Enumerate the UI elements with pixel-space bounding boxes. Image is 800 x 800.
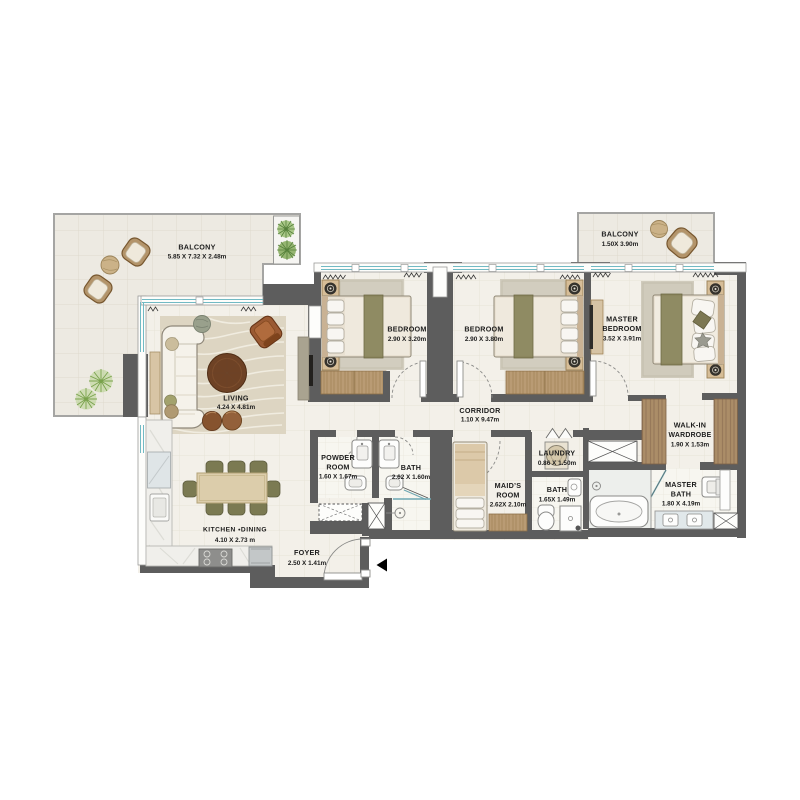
svg-text:BEDROOM: BEDROOM xyxy=(602,324,641,333)
svg-text:ROOM: ROOM xyxy=(496,491,519,500)
svg-text:CORRIDOR: CORRIDOR xyxy=(459,406,501,415)
svg-text:BALCONY: BALCONY xyxy=(601,230,638,239)
svg-text:3.52 X 3.91m: 3.52 X 3.91m xyxy=(603,336,642,343)
svg-text:KITCHEN •DINING: KITCHEN •DINING xyxy=(203,527,267,534)
svg-text:POWDER: POWDER xyxy=(321,453,355,462)
svg-text:1.10 X 9.47m: 1.10 X 9.47m xyxy=(461,417,500,424)
svg-text:5.85 X 7.32 X 2.48m: 5.85 X 7.32 X 2.48m xyxy=(168,254,227,261)
svg-text:FOYER: FOYER xyxy=(294,548,321,557)
svg-text:1.50X 3.90m: 1.50X 3.90m xyxy=(602,241,639,248)
svg-text:4.24 X 4.81m: 4.24 X 4.81m xyxy=(217,404,256,411)
svg-text:2.62X 2.10m: 2.62X 2.10m xyxy=(490,502,527,509)
svg-text:1.80 X 4.19m: 1.80 X 4.19m xyxy=(662,501,701,508)
svg-text:0.86 X 1.50m: 0.86 X 1.50m xyxy=(538,460,577,467)
svg-text:BATH: BATH xyxy=(401,463,421,472)
svg-text:ROOM: ROOM xyxy=(326,463,349,472)
svg-text:1.60 X 1.67m: 1.60 X 1.67m xyxy=(319,474,358,481)
svg-text:BEDROOM: BEDROOM xyxy=(387,325,426,334)
svg-text:WARDROBE: WARDROBE xyxy=(669,432,712,439)
svg-text:MASTER: MASTER xyxy=(665,480,697,489)
svg-text:MAID’S: MAID’S xyxy=(495,481,522,490)
svg-text:BALCONY: BALCONY xyxy=(178,243,215,252)
svg-text:2.90 X 3.20m: 2.90 X 3.20m xyxy=(388,336,427,343)
svg-text:BEDROOM: BEDROOM xyxy=(464,325,503,334)
svg-text:BATH: BATH xyxy=(671,490,691,499)
svg-text:2.90 X 3.80m: 2.90 X 3.80m xyxy=(465,336,504,343)
svg-text:LAUNDRY: LAUNDRY xyxy=(539,449,576,458)
svg-text:WALK-IN: WALK-IN xyxy=(674,421,707,430)
svg-text:2.50 X 1.41m: 2.50 X 1.41m xyxy=(288,560,327,567)
svg-text:2.62 X 1.60m: 2.62 X 1.60m xyxy=(392,474,431,481)
svg-text:1.90 X 1.53m: 1.90 X 1.53m xyxy=(671,442,710,449)
svg-text:1.65X 1.49m: 1.65X 1.49m xyxy=(539,497,576,504)
svg-text:LIVING: LIVING xyxy=(223,394,249,403)
svg-text:4.10 X 2.73 m: 4.10 X 2.73 m xyxy=(215,537,255,544)
svg-text:MASTER: MASTER xyxy=(606,315,638,324)
svg-text:BATH: BATH xyxy=(547,485,567,494)
